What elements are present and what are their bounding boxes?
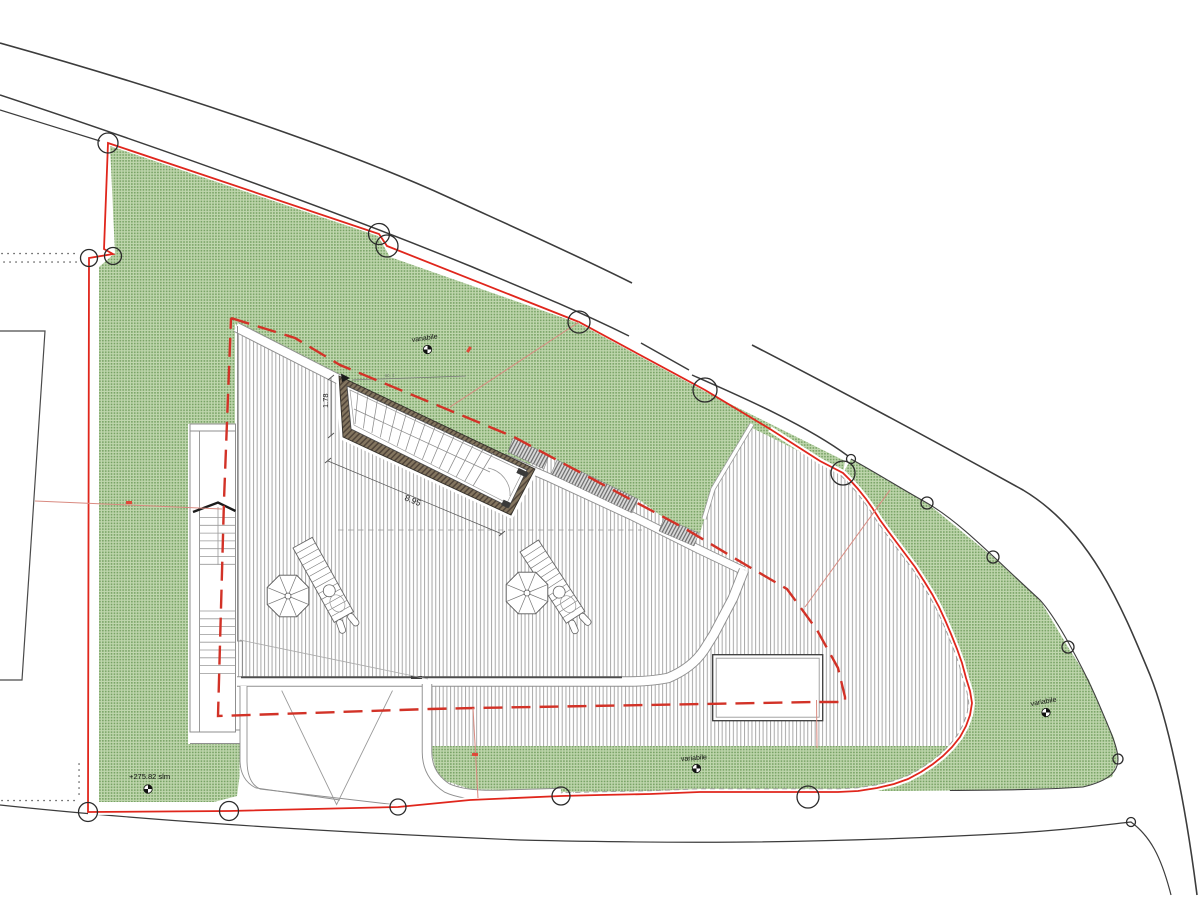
svg-text:+275.82 slm: +275.82 slm	[129, 772, 170, 781]
svg-text:sc. 1: sc. 1	[385, 373, 395, 378]
svg-text:1.78: 1.78	[321, 393, 330, 408]
